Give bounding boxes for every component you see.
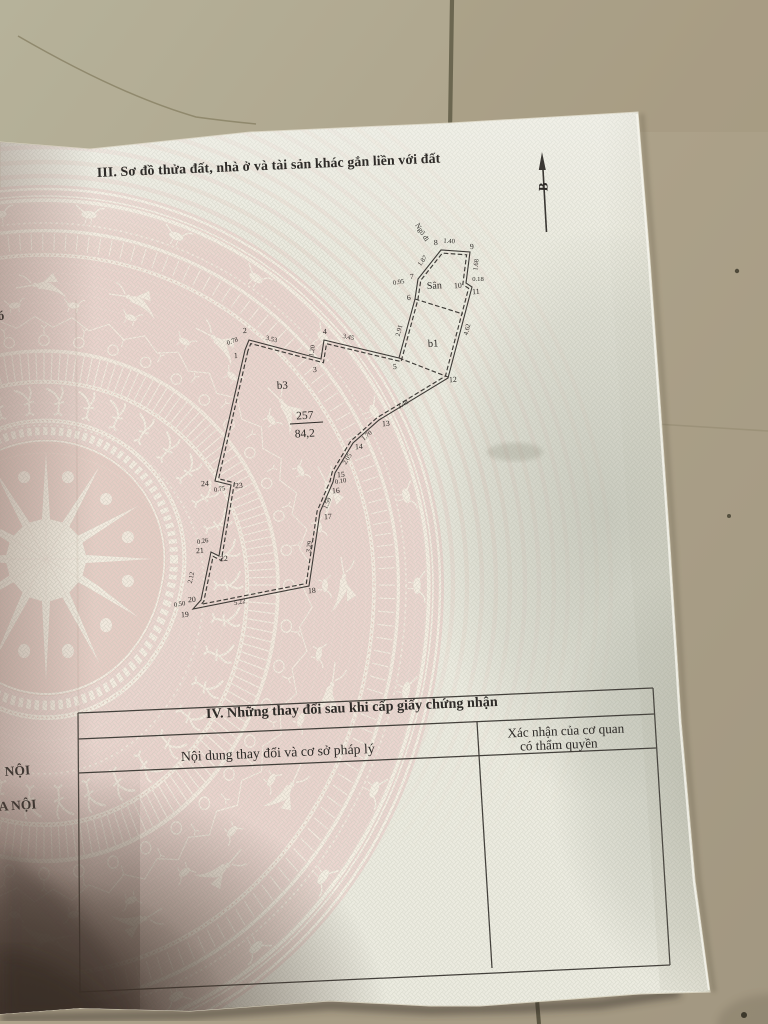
- svg-text:11: 11: [472, 287, 480, 296]
- svg-text:B: B: [535, 182, 550, 192]
- svg-text:1.68: 1.68: [472, 258, 480, 271]
- svg-text:13: 13: [382, 419, 390, 428]
- svg-text:257: 257: [296, 410, 314, 423]
- svg-text:1.40: 1.40: [443, 238, 456, 246]
- svg-text:20: 20: [188, 595, 196, 604]
- svg-text:10: 10: [454, 281, 462, 290]
- svg-text:17: 17: [324, 512, 332, 521]
- svg-text:18: 18: [308, 586, 316, 595]
- svg-text:22: 22: [220, 554, 228, 563]
- svg-text:9: 9: [470, 242, 474, 251]
- svg-text:7: 7: [410, 272, 414, 281]
- svg-text:3: 3: [313, 365, 317, 374]
- svg-text:16: 16: [332, 486, 340, 495]
- svg-text:24: 24: [201, 479, 209, 488]
- svg-text:8: 8: [434, 238, 438, 247]
- svg-text:14: 14: [355, 442, 363, 451]
- svg-text:2: 2: [243, 326, 247, 335]
- svg-text:0.18: 0.18: [472, 276, 484, 283]
- svg-text:5: 5: [393, 362, 397, 371]
- svg-text:4: 4: [323, 327, 327, 336]
- svg-text:15: 15: [337, 470, 345, 479]
- svg-text:b1: b1: [428, 338, 439, 350]
- svg-text:12: 12: [449, 375, 457, 384]
- svg-text:84,2: 84,2: [294, 427, 315, 440]
- svg-text:19: 19: [181, 610, 189, 619]
- svg-text:1: 1: [234, 351, 238, 360]
- svg-text:23: 23: [235, 481, 243, 490]
- svg-text:21: 21: [196, 546, 204, 555]
- svg-text:6: 6: [407, 293, 411, 302]
- svg-text:Sân: Sân: [427, 280, 443, 292]
- svg-text:b3: b3: [277, 379, 289, 392]
